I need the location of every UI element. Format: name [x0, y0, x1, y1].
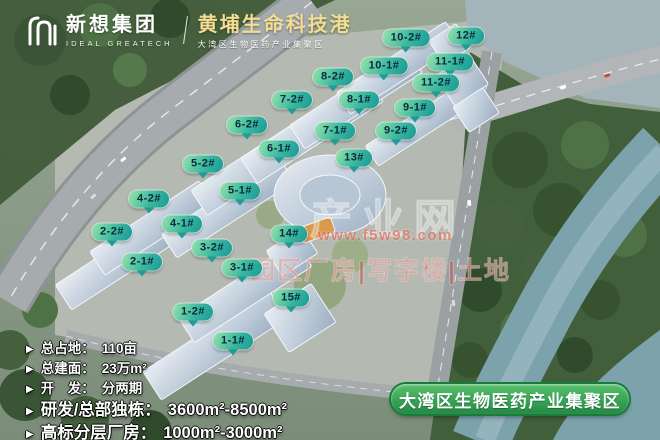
project-title: 黄埔生命科技港 — [198, 14, 352, 36]
stat-row-4: ▶研发/总部独栋：3600m²-8500m² — [26, 400, 287, 423]
building-label-4-2: 4-2# — [129, 191, 169, 208]
project-stats-list: ▶总占地：110亩▶总建面：23万m²▶开 发：分两期▶研发/总部独栋：3600… — [26, 340, 287, 440]
stat-label: 高标分层厂房： — [41, 423, 157, 440]
building-label-11-1: 11-1# — [427, 54, 473, 71]
header-divider — [183, 16, 188, 44]
stat-row-5: ▶高标分层厂房：1000m²-3000m² — [26, 423, 287, 440]
bullet-arrow-icon: ▶ — [26, 401, 34, 422]
company-name-en: IDEAL GREATECH — [66, 39, 173, 48]
building-label-1-2: 1-2# — [173, 304, 213, 321]
stat-label: 总建面： — [41, 360, 95, 378]
building-label-6-2: 6-2# — [227, 117, 267, 134]
watermark-url: www.f5w98.com — [318, 227, 453, 244]
company-logo-icon — [26, 14, 58, 48]
stat-row-1: ▶总占地：110亩 — [26, 340, 287, 360]
stat-value: 110亩 — [102, 340, 137, 358]
building-label-2-2: 2-2# — [92, 224, 132, 241]
building-label-15: 15# — [273, 290, 309, 307]
stat-value: 3600m²-8500m² — [168, 400, 287, 421]
building-label-14: 14# — [271, 226, 307, 243]
building-label-8-2: 8-2# — [313, 69, 353, 86]
building-label-4-1: 4-1# — [162, 216, 202, 233]
stat-value: 1000m²-3000m² — [163, 423, 282, 440]
aerial-render-poster: 产业网 www.f5w98.com 园区厂房|写字楼|土地 新想集团 IDEAL… — [0, 0, 660, 440]
building-label-3-1: 3-1# — [222, 260, 262, 277]
header: 新想集团 IDEAL GREATECH 黄埔生命科技港 大湾区生物医药产业集聚区 — [26, 14, 352, 50]
building-label-12: 12# — [448, 28, 484, 45]
building-label-13: 13# — [336, 150, 372, 167]
bottom-banner: 大湾区生物医药产业集聚区 — [391, 384, 629, 414]
stat-label: 总占地： — [41, 340, 95, 358]
building-label-11-2: 11-2# — [413, 75, 459, 92]
bottom-banner-text: 大湾区生物医药产业集聚区 — [399, 387, 621, 412]
building-label-3-2: 3-2# — [192, 240, 232, 257]
stat-row-3: ▶开 发：分两期 — [26, 380, 287, 400]
building-label-7-1: 7-1# — [315, 123, 355, 140]
building-label-9-2: 9-2# — [376, 123, 416, 140]
building-label-10-1: 10-1# — [361, 58, 408, 75]
bullet-arrow-icon: ▶ — [26, 361, 34, 379]
stat-label: 研发/总部独栋： — [41, 400, 161, 421]
bullet-arrow-icon: ▶ — [26, 341, 34, 359]
stat-row-2: ▶总建面：23万m² — [26, 360, 287, 380]
building-label-5-1: 5-1# — [220, 183, 260, 200]
project-subtitle: 大湾区生物医药产业集聚区 — [198, 39, 352, 50]
company-logo-text: 新想集团 IDEAL GREATECH — [66, 14, 173, 48]
building-label-5-2: 5-2# — [183, 156, 223, 173]
building-label-2-1: 2-1# — [122, 254, 162, 271]
watermark-category-row: 园区厂房|写字楼|土地 — [250, 251, 511, 287]
building-label-6-1: 6-1# — [259, 141, 299, 158]
building-label-9-1: 9-1# — [395, 100, 435, 117]
stat-label: 开 发： — [41, 380, 95, 398]
bullet-arrow-icon: ▶ — [26, 381, 34, 399]
company-name-cn: 新想集团 — [66, 14, 173, 36]
building-label-8-1: 8-1# — [339, 92, 379, 109]
project-title-block: 黄埔生命科技港 大湾区生物医药产业集聚区 — [198, 14, 352, 50]
building-label-7-2: 7-2# — [272, 92, 312, 109]
stat-value: 分两期 — [102, 380, 143, 398]
building-label-10-2: 10-2# — [383, 30, 430, 47]
stat-value: 23万m² — [102, 360, 147, 378]
bullet-arrow-icon: ▶ — [26, 424, 34, 440]
